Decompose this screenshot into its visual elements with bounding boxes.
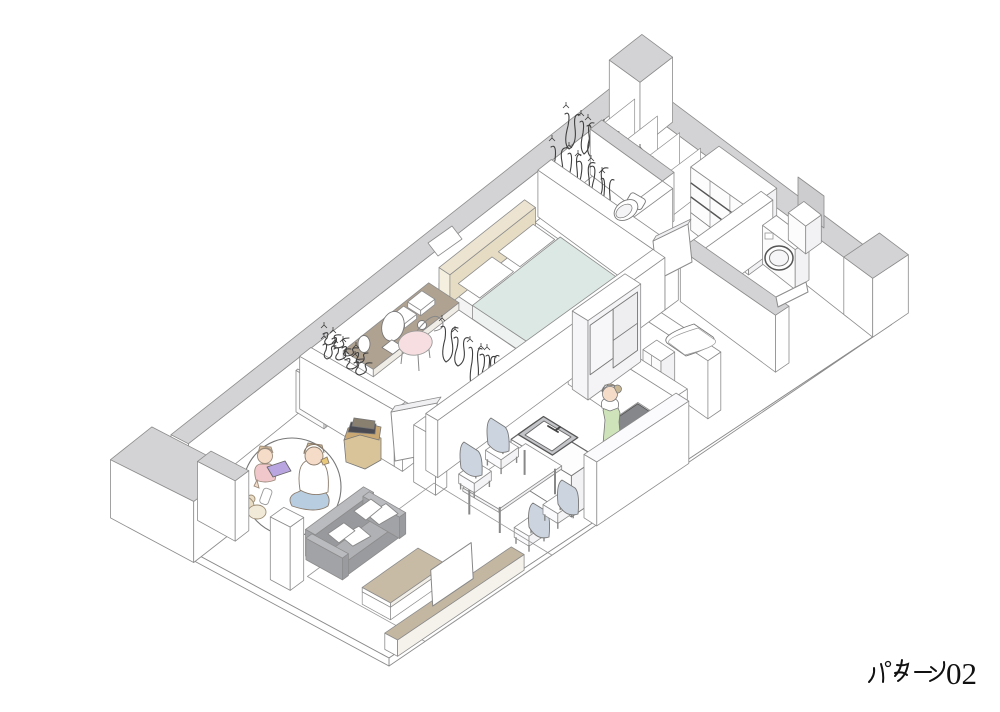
svg-text:02: 02 [946, 656, 977, 691]
